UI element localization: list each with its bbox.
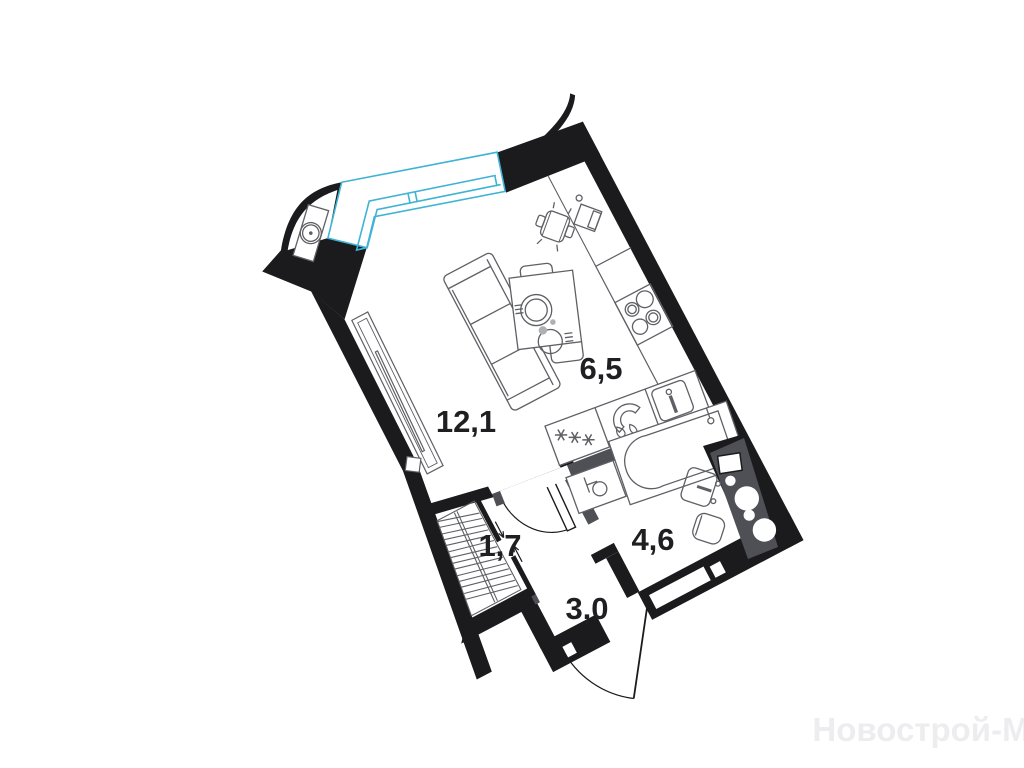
svg-text:6,5: 6,5 [579,351,622,386]
svg-text:12,1: 12,1 [436,404,496,439]
svg-text:3,0: 3,0 [565,591,608,626]
svg-text:Новострой-М: Новострой-М [812,711,1024,748]
svg-text:1,7: 1,7 [478,528,521,563]
svg-text:4,6: 4,6 [631,522,674,557]
